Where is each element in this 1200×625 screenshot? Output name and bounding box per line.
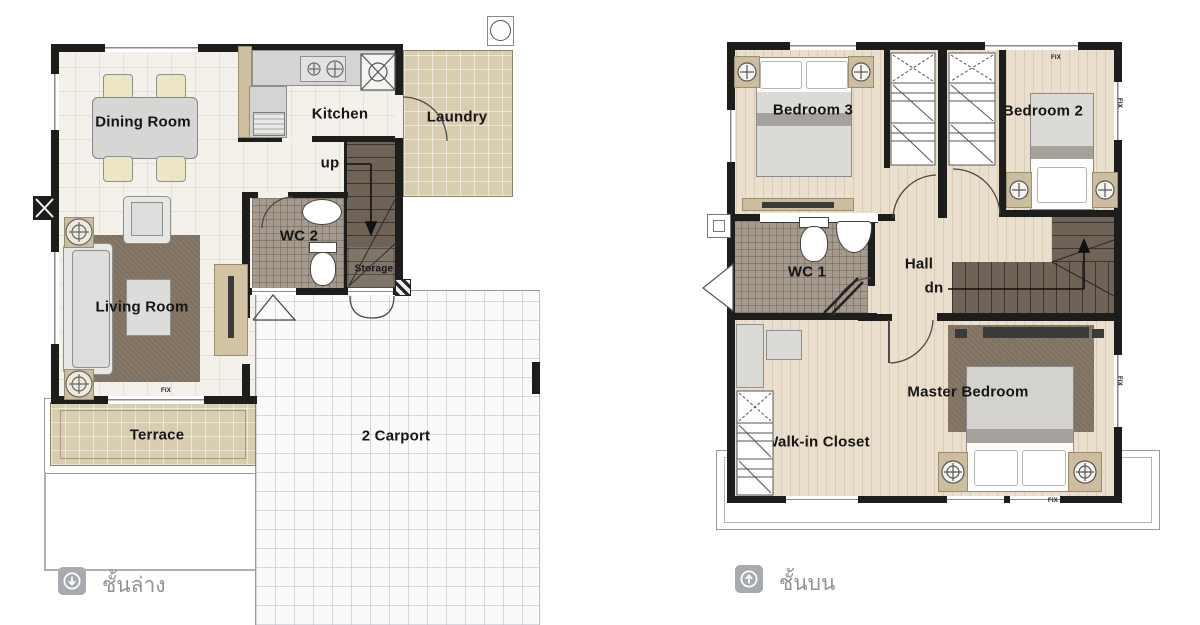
window bbox=[947, 496, 1004, 503]
hatched-post bbox=[395, 279, 411, 296]
window bbox=[108, 396, 204, 404]
carport-corner-post bbox=[532, 362, 540, 394]
roof-vent-box-inner bbox=[713, 220, 725, 232]
window bbox=[790, 42, 856, 50]
window bbox=[786, 496, 858, 503]
wall-segment bbox=[884, 48, 890, 168]
armchair-seat bbox=[131, 202, 163, 236]
fix-window-label: FIX bbox=[1116, 98, 1122, 108]
stairs-dn-label: dn bbox=[925, 280, 944, 297]
room-label-wc1: WC 1 bbox=[788, 264, 826, 281]
water-tank-circle bbox=[490, 20, 511, 41]
window bbox=[105, 44, 198, 52]
room-label-wc2: WC 2 bbox=[280, 228, 318, 245]
tv bbox=[228, 276, 234, 338]
room-label-master: Master Bedroom bbox=[907, 384, 1028, 401]
bed3-pillow bbox=[806, 61, 848, 89]
room-label-hall: Hall bbox=[905, 256, 933, 273]
wall-segment bbox=[395, 44, 403, 296]
wall-segment bbox=[344, 140, 347, 288]
upper-stairs-lower bbox=[952, 262, 1114, 313]
kitchen-drainboard bbox=[253, 112, 285, 136]
nightstand bbox=[734, 56, 760, 88]
carport-door-opening bbox=[252, 288, 296, 295]
master-pillow bbox=[1022, 450, 1066, 486]
wc2-toilet-bowl bbox=[310, 252, 336, 286]
fix-window-label: FIX bbox=[1116, 376, 1122, 386]
bed2-blanket-band bbox=[1031, 146, 1093, 159]
master-pillow bbox=[974, 450, 1018, 486]
bed2-pillow bbox=[1037, 167, 1087, 203]
room-label-carport: 2 Carport bbox=[362, 428, 430, 445]
bedroom3-desk-top bbox=[762, 202, 834, 208]
wc1-toilet-bowl bbox=[800, 226, 828, 262]
walkin-dresser bbox=[766, 330, 802, 360]
wc2-door-opening bbox=[258, 192, 288, 198]
room-label-dining: Dining Room bbox=[95, 114, 191, 131]
side-table-base bbox=[64, 369, 94, 400]
wall-segment bbox=[938, 48, 947, 218]
nightstand bbox=[848, 56, 874, 88]
carport-floor bbox=[255, 290, 540, 625]
nightstand bbox=[1068, 452, 1102, 492]
wall-segment bbox=[858, 314, 892, 321]
side-table-base bbox=[64, 217, 94, 248]
room-label-walkin: Walk-in Closet bbox=[762, 433, 872, 450]
meter-box bbox=[33, 196, 56, 220]
floor-plan-canvas: Dining Room Kitchen Laundry up WC 2 Stor… bbox=[0, 0, 1200, 625]
nightstand bbox=[1006, 172, 1032, 208]
upper-stairs-upper bbox=[1052, 217, 1114, 262]
bed3-pillow bbox=[760, 61, 802, 89]
room-label-bedroom2: Bedroom 2 bbox=[1003, 103, 1083, 120]
wall-segment bbox=[999, 48, 1006, 215]
site-line-vertical bbox=[44, 472, 46, 571]
window bbox=[985, 42, 1078, 50]
upper-floor-badge bbox=[735, 565, 763, 593]
fix-window-label: FIX bbox=[161, 388, 171, 394]
dining-chair bbox=[103, 156, 133, 182]
wc2-sink bbox=[302, 199, 342, 225]
dining-chair bbox=[156, 156, 186, 182]
storage-label: Storage bbox=[355, 264, 394, 275]
window bbox=[51, 252, 59, 344]
laundry-door-opening bbox=[395, 95, 403, 138]
ground-floor-badge bbox=[58, 567, 86, 595]
master-tv bbox=[983, 327, 1089, 338]
master-speaker bbox=[1092, 329, 1104, 338]
down-arrow-circle-icon bbox=[62, 571, 82, 591]
master-blanket-band bbox=[967, 429, 1073, 443]
room-label-laundry: Laundry bbox=[427, 109, 488, 126]
nightstand bbox=[938, 452, 968, 492]
stairs-up-label: up bbox=[321, 155, 340, 172]
window bbox=[1114, 82, 1122, 140]
room-label-kitchen: Kitchen bbox=[312, 106, 368, 123]
walkin-cabinet bbox=[736, 324, 764, 388]
wall-segment bbox=[999, 210, 1122, 217]
ground-floor-legend-label: ชั้นล่าง bbox=[102, 569, 166, 602]
wall-segment bbox=[937, 313, 1122, 321]
up-arrow-circle-icon bbox=[739, 569, 759, 589]
room-label-bedroom3: Bedroom 3 bbox=[773, 102, 853, 119]
master-speaker bbox=[955, 329, 967, 338]
wall-segment bbox=[727, 313, 877, 320]
upper-floor-legend-label: ชั้นบน bbox=[779, 567, 835, 600]
nightstand bbox=[1092, 172, 1118, 208]
window bbox=[727, 110, 735, 162]
window bbox=[51, 74, 59, 130]
kitchen-stove bbox=[300, 56, 346, 82]
room-label-living: Living Room bbox=[95, 299, 188, 316]
room-label-terrace: Terrace bbox=[130, 427, 185, 444]
fix-window-label: FIX bbox=[1048, 498, 1058, 504]
fix-window-label: FIX bbox=[1051, 55, 1061, 61]
window bbox=[1114, 355, 1122, 427]
carport-double-door-opening bbox=[348, 288, 393, 295]
